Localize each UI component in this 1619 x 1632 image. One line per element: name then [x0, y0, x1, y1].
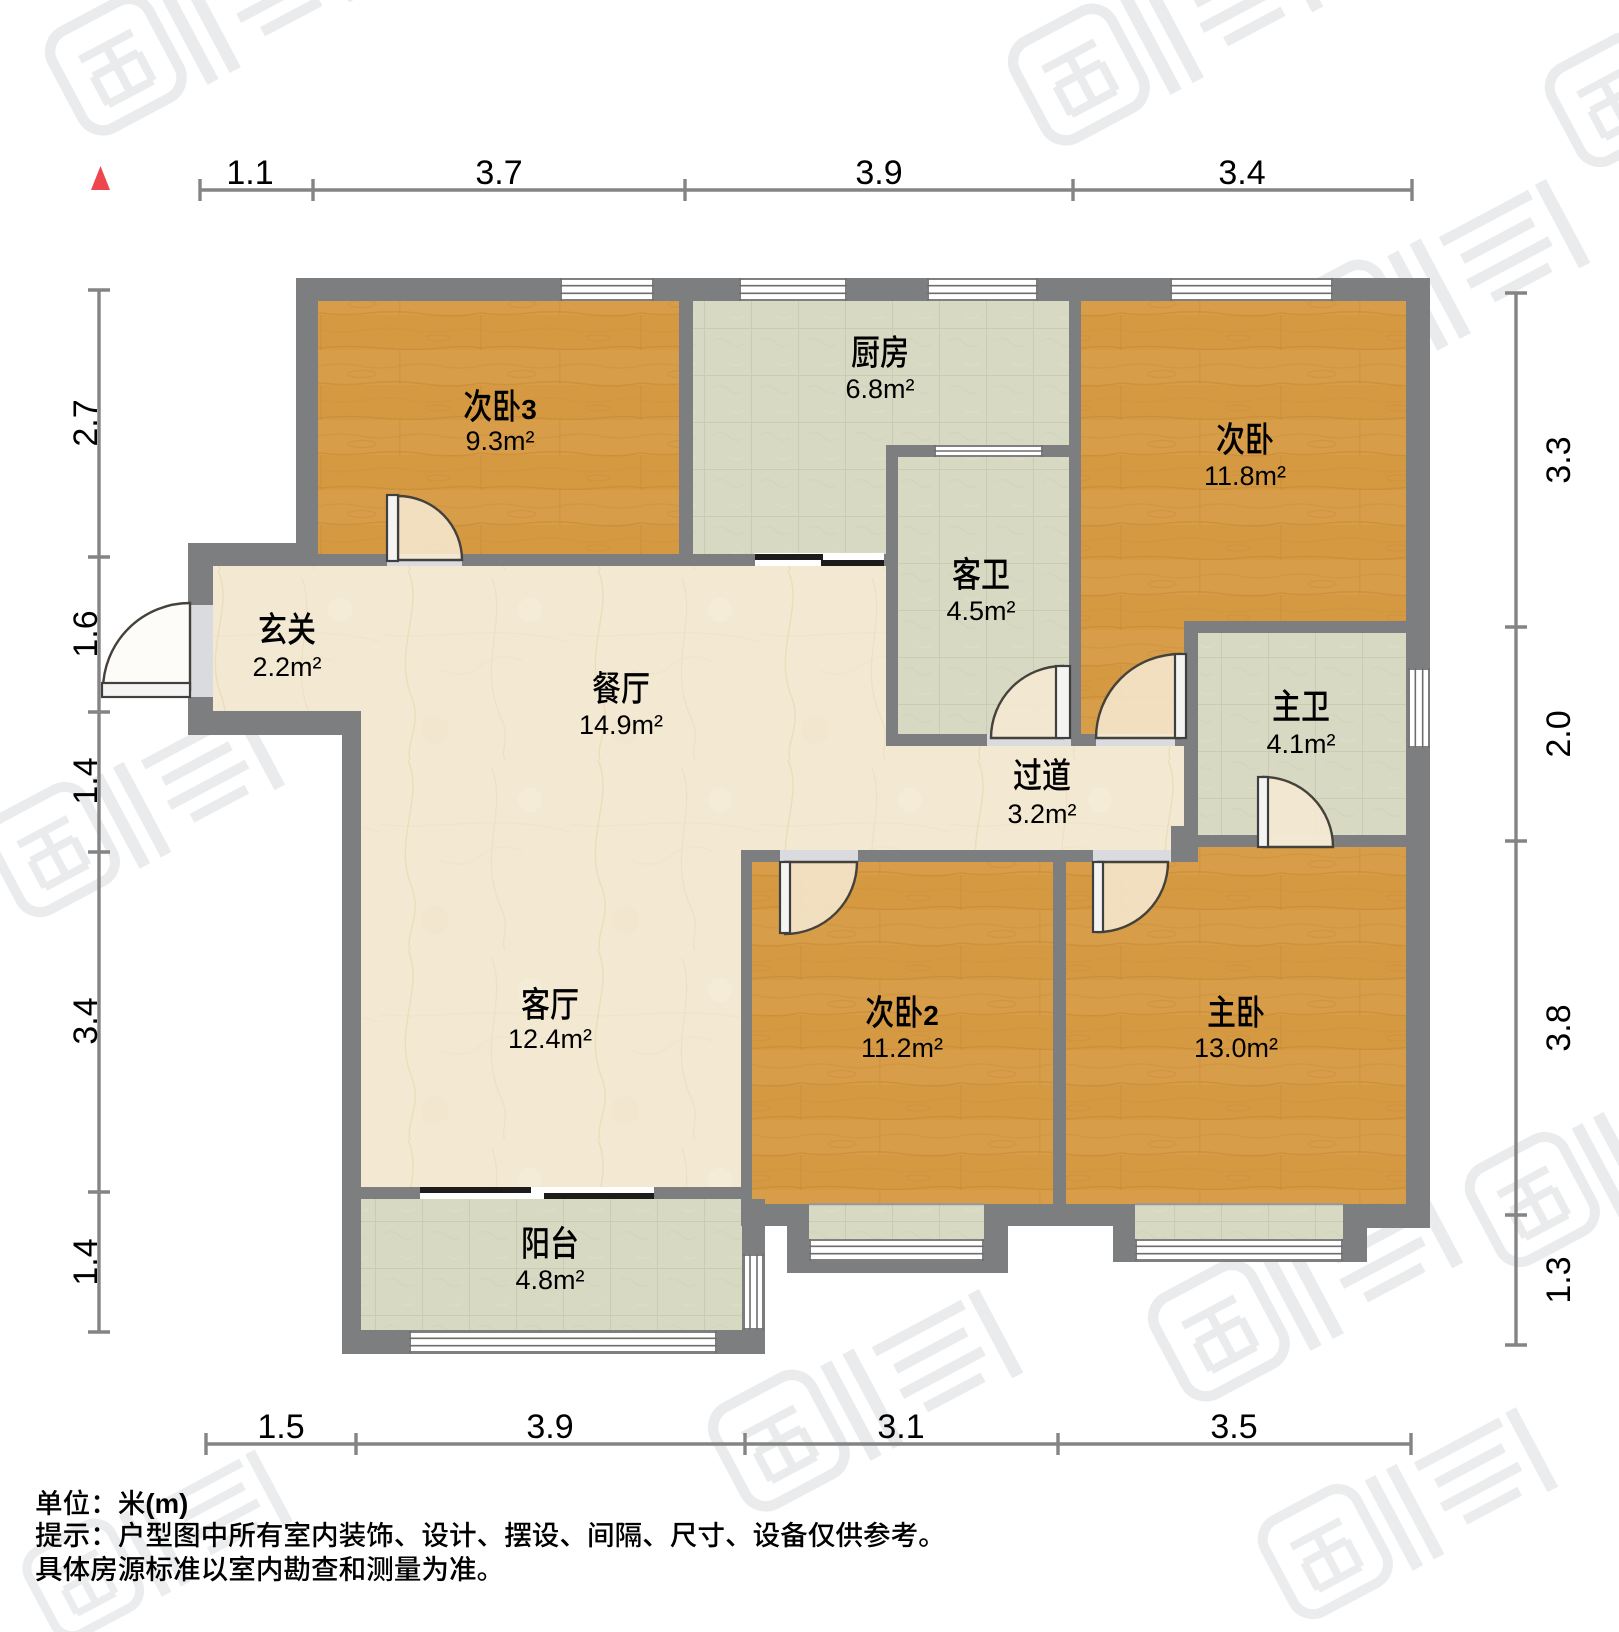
svg-text:1.3: 1.3 — [1540, 1256, 1578, 1303]
svg-text:3.2m²: 3.2m² — [1007, 799, 1076, 829]
svg-text:4.5m²: 4.5m² — [946, 596, 1015, 626]
svg-text:3.1: 3.1 — [877, 1408, 924, 1446]
svg-text:2.2m²: 2.2m² — [252, 652, 321, 682]
svg-text:12.4m²: 12.4m² — [508, 1024, 592, 1054]
svg-text:3.3: 3.3 — [1540, 436, 1578, 483]
svg-text:6.8m²: 6.8m² — [845, 374, 914, 404]
svg-text:11.8m²: 11.8m² — [1204, 461, 1286, 491]
svg-text:1.6: 1.6 — [67, 610, 105, 657]
svg-text:3.4: 3.4 — [67, 997, 105, 1044]
svg-text:3.5: 3.5 — [1210, 1408, 1257, 1446]
svg-text:3.8: 3.8 — [1540, 1004, 1578, 1051]
svg-text:9.3m²: 9.3m² — [465, 426, 534, 456]
svg-text:3.9: 3.9 — [526, 1408, 573, 1446]
svg-text:4.1m²: 4.1m² — [1266, 729, 1335, 759]
svg-text:3.4: 3.4 — [1218, 154, 1265, 192]
svg-text:1.5: 1.5 — [257, 1408, 304, 1446]
svg-text:1.4: 1.4 — [67, 1238, 105, 1285]
svg-text:3.7: 3.7 — [475, 154, 522, 192]
svg-text:2.0: 2.0 — [1540, 710, 1578, 757]
svg-text:3: 3 — [521, 394, 537, 425]
svg-text:2: 2 — [923, 1000, 939, 1031]
svg-text:1.4: 1.4 — [67, 757, 105, 804]
svg-text:1.1: 1.1 — [226, 154, 273, 192]
svg-text:13.0m²: 13.0m² — [1194, 1033, 1278, 1063]
svg-text:4.8m²: 4.8m² — [515, 1265, 584, 1295]
svg-text:14.9m²: 14.9m² — [579, 710, 663, 740]
svg-text:11.2m²: 11.2m² — [861, 1033, 943, 1063]
svg-text:3.9: 3.9 — [855, 154, 902, 192]
svg-text:2.7: 2.7 — [67, 399, 105, 446]
svg-text:(m): (m) — [145, 1488, 188, 1519]
